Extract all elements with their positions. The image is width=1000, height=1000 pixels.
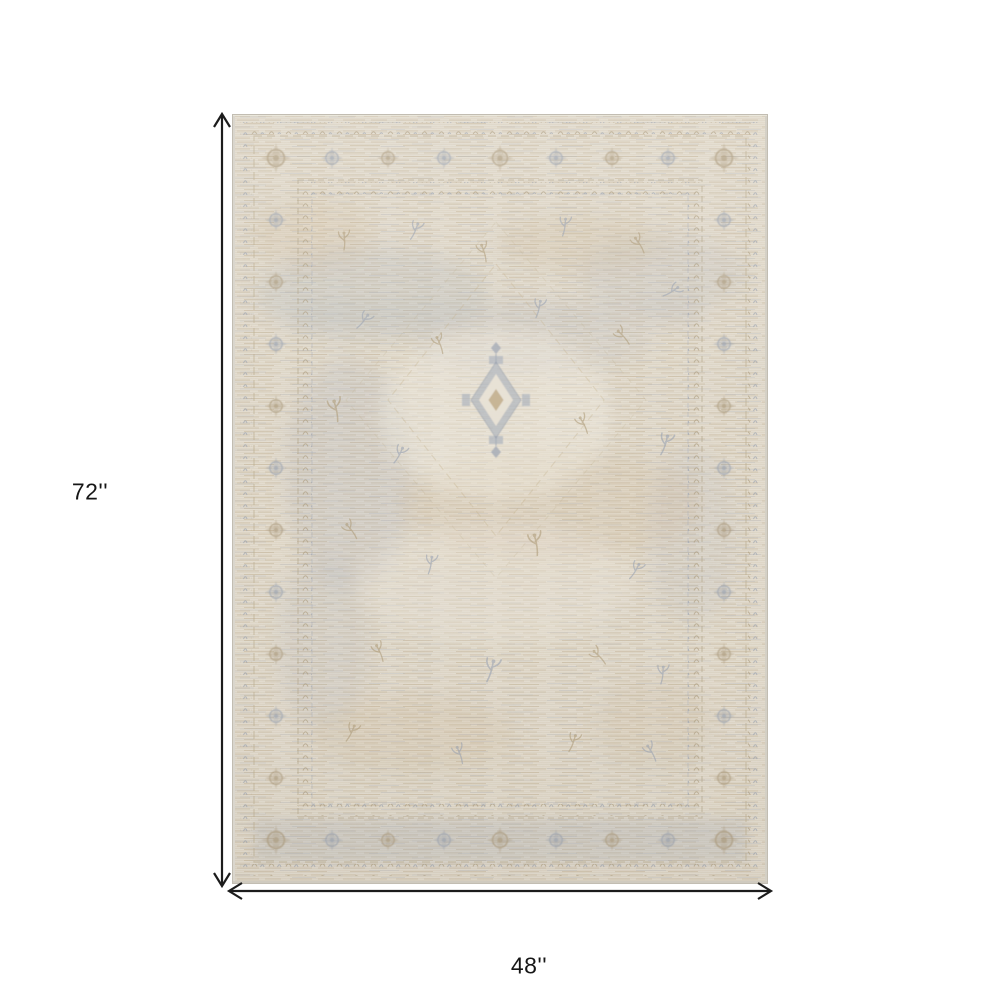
height-label: 72'' <box>72 479 108 506</box>
rug-image <box>232 114 768 884</box>
product-dimension-diagram: 72'' 48'' <box>0 0 1000 1000</box>
rug-light-wash <box>232 114 768 884</box>
rug-graphic <box>232 114 768 884</box>
height-dimension-arrow <box>205 105 239 895</box>
width-dimension-arrow <box>220 875 780 907</box>
width-label: 48'' <box>511 953 547 980</box>
